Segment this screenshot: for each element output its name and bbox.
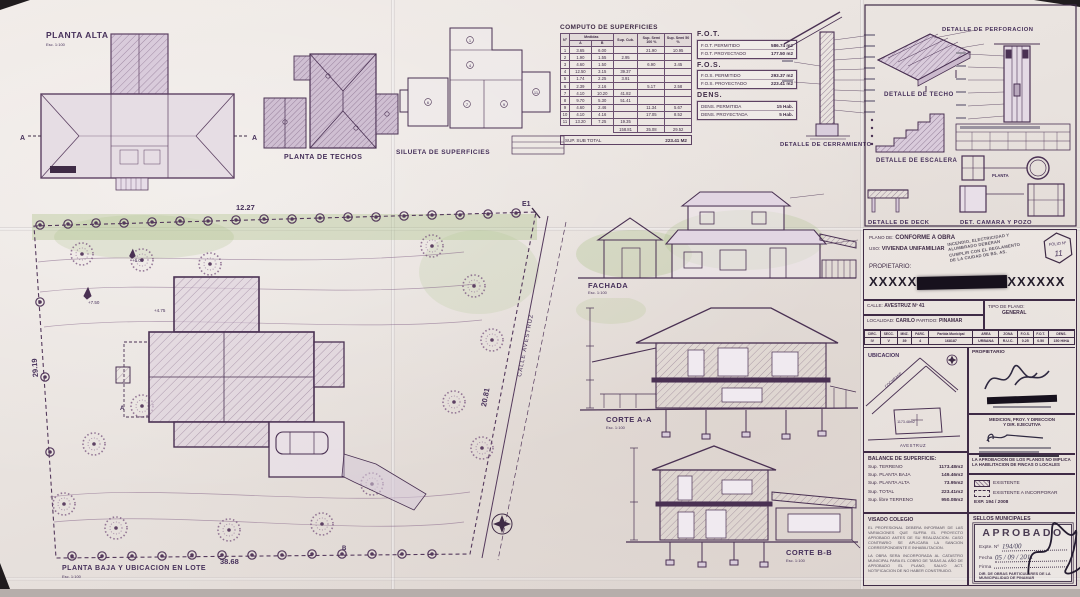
- redacted-x-left: XXXXX: [869, 274, 917, 289]
- sellos-title: SELLOS MUNICIPALES: [969, 514, 1075, 524]
- signature-caption-bar: [993, 406, 1051, 408]
- computo-cell: [665, 118, 692, 125]
- visado-paragraph-1: EL PROFESIONAL DEBERA INFORMAR DE LAS VA…: [868, 525, 963, 550]
- computo-cell: 2.46: [591, 104, 613, 111]
- parcel-header: F.O.T.: [1033, 331, 1048, 338]
- computo-cell: [665, 68, 692, 75]
- computo-row: 5 1.74 2.25 3.91: [561, 75, 692, 82]
- uso-line: USO: VIVIENDA UNIFAMILIAR: [869, 246, 945, 252]
- computo-table: Nº Medidas Sup. Cub. Sup. Semi 100 % Sup…: [560, 33, 692, 133]
- computo-cell: [638, 75, 665, 82]
- computo-cell: 8.52: [665, 111, 692, 118]
- silueta-title: SILUETA DE SUPERFICIES: [396, 149, 490, 156]
- planta-alta-roof-graphics: [28, 34, 249, 190]
- dim-bottom: 38.68: [220, 557, 239, 566]
- computo-cell: 5: [561, 75, 570, 82]
- fachada-title: FACHADA: [588, 281, 628, 290]
- detalle-techo-title: DETALLE DE TECHO: [884, 91, 954, 98]
- tipo-plano-label: TIPO DE PLANO:: [988, 304, 1025, 309]
- contour-label-3: +4.75: [154, 308, 166, 313]
- computo-superficies: COMPUTO DE SUPERFICIES Nº Medidas Sup. C…: [560, 24, 692, 145]
- legend-swatch-existente: [974, 480, 990, 487]
- computo-cell: [665, 97, 692, 104]
- balance-row: Sup. PLANTA ALTA73.95m2: [868, 480, 963, 488]
- parcel-value: 39: [897, 338, 911, 345]
- computo-cell: [665, 75, 692, 82]
- corte-aa-scale: Esc. 1:100: [606, 425, 626, 430]
- computo-total-semi100: 35.08: [638, 126, 665, 133]
- computo-cell: [613, 104, 638, 111]
- computo-cell: 41.82: [613, 90, 638, 97]
- parcel-header: F.O.S.: [1017, 331, 1033, 338]
- parcel-header: SECC.: [880, 331, 897, 338]
- legend-cell: EXISTENTE EXISTENTE A INCORPORAR EXP. 19…: [968, 474, 1075, 513]
- firma-label: Firma: [979, 565, 991, 570]
- uso-value: VIVIENDA UNIFAMILIAR: [882, 246, 945, 252]
- computo-cell: 4: [561, 68, 570, 75]
- parcel-header: MNZ.: [897, 331, 911, 338]
- parcel-table-wrap: CIRC.SECC.MNZ.PARC.Partida MunicipalAREA…: [864, 330, 1075, 345]
- computo-cell: [638, 97, 665, 104]
- computo-cell: 51.41: [613, 97, 638, 104]
- dim-top: 12.27: [236, 203, 255, 212]
- detalle-escalera-title: DETALLE DE ESCALERA: [876, 158, 958, 164]
- computo-cell: 1: [561, 47, 570, 54]
- legend-row-existente: EXISTENTE: [974, 480, 1070, 487]
- plano-label: PLANO DE:: [869, 235, 894, 240]
- computo-cell: 3.15: [591, 68, 613, 75]
- propietario-signature: [969, 357, 1074, 397]
- planta-alta-scale: Esc. 1:100: [46, 42, 66, 47]
- balance-title: BALANCE DE SUPERFICIE:: [868, 456, 963, 462]
- prop-sign-label: PROPIETARIO: [969, 348, 1075, 357]
- computo-cell: 2: [561, 54, 570, 61]
- folio-label: FOLIO Nº: [1049, 240, 1067, 247]
- dim-left: 29.19: [30, 358, 40, 377]
- balance-rows: Sup. TERRENO1173.48m2Sup. PLANTA BAJA149…: [868, 464, 963, 506]
- medicion-signature: [969, 430, 1074, 444]
- computo-subtotal: SUP. SUB TOTAL 223.41 M2: [560, 135, 692, 145]
- computo-row: 11 13.20 7.25 19.35: [561, 118, 692, 125]
- parcel-header: DENS.: [1048, 331, 1074, 338]
- computo-cell: 1.90: [569, 54, 591, 61]
- computo-cell: 39.37: [613, 68, 638, 75]
- plano-value: CONFORME A OBRA: [895, 235, 955, 241]
- computo-cell: 2.95: [613, 54, 638, 61]
- propietario-label: PROPIETARIO:: [869, 264, 911, 270]
- balance-row: Sup. TERRENO1173.48m2: [868, 464, 963, 472]
- redacted-x-right: XXXXXX: [1007, 274, 1065, 289]
- localidad-value: CARILO: [896, 318, 915, 324]
- site-green-wash: [32, 214, 539, 314]
- computo-cell: 4.10: [569, 111, 591, 118]
- sellos-cell: SELLOS MUNICIPALES APROBADO Expte. Nº 19…: [968, 513, 1075, 585]
- title-block: PLANO DE: CONFORME A OBRA USO: VIVIENDA …: [863, 229, 1077, 586]
- computo-cell: [665, 90, 692, 97]
- visado-title: VISADO COLEGIO: [868, 517, 963, 523]
- street-label: CALLE AVESTRUZ: [517, 313, 535, 377]
- expte-value: 194/00: [1002, 541, 1067, 551]
- computo-cell: 9: [561, 104, 570, 111]
- aprobado-stamp: APROBADO Expte. Nº 194/00 Fecha 05 / 09 …: [974, 524, 1072, 582]
- computo-cell: 1.50: [591, 61, 613, 68]
- planta-baja-title: PLANTA BAJA Y UBICACION EN LOTE: [62, 565, 206, 572]
- computo-cell: 8: [561, 97, 570, 104]
- detalle-techo-graphics: [878, 30, 984, 92]
- site-plan-drawing: +6.00 +7.50 +4.75 12.27 29.19 20.81 38.6…: [24, 192, 574, 586]
- medicion-label-2: Y DIR. EJECUTIVA: [972, 422, 1072, 427]
- computo-cell: 12.50: [569, 68, 591, 75]
- localidad-cell: LOCALIDAD: CARILO PARTIDO: PINAMAR: [864, 315, 984, 330]
- plano-de-line: PLANO DE: CONFORME A OBRA: [869, 235, 955, 241]
- parcel-header: PARC.: [912, 331, 929, 338]
- computo-cell: [665, 54, 692, 61]
- computo-col-n: Nº: [561, 34, 570, 47]
- ubicacion-map: UBICACION COCHRANE 1173.48m2 AVESTRUZ: [864, 348, 966, 451]
- nota-cell: LA APROBACION DE LOS PLANOS NO IMPLICA L…: [968, 454, 1075, 474]
- parcel-header: Partida Municipal: [929, 331, 973, 338]
- firma-value: [994, 566, 1067, 568]
- firma-row: Firma: [979, 565, 1067, 570]
- balance-row: Sup. TOTAL223.41m2: [868, 489, 963, 497]
- fachada-drawing: FACHADA Esc. 1:100: [574, 182, 860, 296]
- legend-row-incorporar: EXISTENTE A INCORPORAR: [974, 490, 1070, 497]
- planta-alta-title: PLANTA ALTA: [46, 30, 108, 40]
- computo-cell: [613, 111, 638, 118]
- parcel-header: ZONA: [999, 331, 1017, 338]
- ubicacion-map-graphics: [866, 355, 960, 440]
- titleblock-header-box: PLANO DE: CONFORME A OBRA USO: VIVIENDA …: [864, 230, 1075, 300]
- calle-value: AVESTRUZ Nº 41: [884, 303, 924, 309]
- computo-row: 6 2.39 2.16 5.17 2.58: [561, 82, 692, 89]
- computo-total-semi50: 29.52: [665, 126, 692, 133]
- computo-cell: 5.17: [638, 82, 665, 89]
- deck-detail-graphics: [868, 190, 908, 212]
- site-marker-a: A: [120, 406, 125, 412]
- computo-row: 8 9.70 5.30 51.41: [561, 97, 692, 104]
- computo-row: 2 1.90 1.55 2.95: [561, 54, 692, 61]
- computo-cell: 2.39: [569, 82, 591, 89]
- computo-cell: 2.16: [591, 82, 613, 89]
- expte-label: Expte. Nº: [979, 545, 999, 550]
- uso-label: USO:: [869, 246, 880, 251]
- legend-existente-label: EXISTENTE: [993, 481, 1020, 486]
- computo-cell: [613, 82, 638, 89]
- calle-label: CALLE:: [867, 303, 883, 308]
- contour-label-2: +7.50: [88, 300, 100, 305]
- balance-cell: BALANCE DE SUPERFICIE: Sup. TERRENO1173.…: [864, 452, 968, 513]
- computo-cell: 1.55: [591, 54, 613, 61]
- computo-cell: 6.00: [591, 47, 613, 54]
- medicion-cell: MEDICION, PROY. Y DIRECCION Y DIR. EJECU…: [968, 414, 1075, 454]
- computo-col-cub: Sup. Cub.: [613, 34, 638, 47]
- parcel-value: R.U.C.: [999, 338, 1017, 345]
- propietario-redacted-line: XXXXXXXXXXX: [869, 274, 1065, 289]
- computo-cell: 17.05: [638, 111, 665, 118]
- computo-cell: 10.95: [665, 47, 692, 54]
- fachada-scale: Esc. 1:100: [588, 290, 608, 295]
- map-street-2: AVESTRUZ: [900, 443, 926, 448]
- detalle-deck-title: DETALLE DE DECK: [868, 220, 930, 226]
- computo-col-semi100: Sup. Semi 100 %: [638, 34, 665, 47]
- planta-baja-scale: Esc. 1:100: [62, 574, 82, 579]
- signature-redaction-bar: [987, 395, 1057, 404]
- computo-cell: 4.60: [569, 104, 591, 111]
- planta-techos-title: PLANTA DE TECHOS: [284, 154, 362, 161]
- detalle-cerramiento-title: DETALLE DE CERRAMIENTO: [780, 142, 872, 148]
- parcel-value: 168187: [929, 338, 973, 345]
- computo-totals-row: 158.81 35.08 29.52: [561, 126, 692, 133]
- planta-alta-section-marker-left: A: [20, 135, 25, 142]
- aprobado-word: APROBADO: [979, 527, 1067, 539]
- corte-bb-scale: Esc. 1:100: [786, 558, 806, 563]
- ubicacion-cell: UBICACION COCHRANE 1173.48m2 AVESTRUZ: [864, 347, 968, 452]
- legend-incorporar-label: EXISTENTE A INCORPORAR: [993, 491, 1058, 496]
- computo-subtotal-value: 223.41 M2: [665, 138, 687, 143]
- computo-subtotal-label: SUP. SUB TOTAL: [565, 138, 601, 143]
- propietario-firma-cell: PROPIETARIO: [968, 347, 1075, 414]
- planta-alta-drawing: PLANTA ALTA Esc. 1:100 A A: [16, 6, 264, 202]
- map-area-value: 1173.48m2: [897, 420, 915, 424]
- direccion-obras-line: DIR. DE OBRAS PARTICULARES DE LA MUNICIP…: [979, 572, 1067, 581]
- parcel-value: URBANA: [973, 338, 999, 345]
- map-street-1: COCHRANE: [884, 371, 903, 389]
- computo-title: COMPUTO DE SUPERFICIES: [560, 24, 692, 31]
- folio-badge: FOLIO Nº 11: [1040, 230, 1075, 265]
- balance-row: Sup. libre TERRENO950.08m2: [868, 497, 963, 505]
- detalle-perforacion-title: DETALLE DE PERFORACION: [942, 27, 1033, 33]
- redaction-bar: [917, 275, 1007, 290]
- planta-small-label: PLANTA: [992, 173, 1009, 178]
- parcel-value: 0.25: [1017, 338, 1033, 345]
- computo-row: 1 3.65 6.00 21.90 10.95: [561, 47, 692, 54]
- parcel-value: 0.50: [1033, 338, 1048, 345]
- computo-cell: [638, 68, 665, 75]
- computo-cell: 10.20: [591, 90, 613, 97]
- computo-cell: 4.10: [569, 90, 591, 97]
- computo-cell: 3: [561, 61, 570, 68]
- computo-col-semi50: Sup. Semi 50 %: [665, 34, 692, 47]
- parcel-value: V: [880, 338, 897, 345]
- partido-value: PINAMAR: [939, 318, 962, 324]
- computo-row: 10 4.10 4.16 17.05 8.52: [561, 111, 692, 118]
- computo-cell: [613, 61, 638, 68]
- marker-e1: E1: [522, 201, 531, 208]
- reglamento-stamp: INCENDIO, ELECTRICIDAD Y ALUMBRADO DEBER…: [947, 226, 1051, 263]
- corte-bb-title: CORTE B-B: [786, 548, 832, 557]
- parcel-value: IV: [865, 338, 881, 345]
- computo-cell: 9.70: [569, 97, 591, 104]
- details-panel: DETALLE DE TECHO DETALLE DE PERFORACION …: [864, 4, 1078, 228]
- computo-cell: 7: [561, 90, 570, 97]
- partido-label: PARTIDO:: [916, 318, 937, 323]
- computo-cell: 2.25: [591, 75, 613, 82]
- planta-techos-graphics: [264, 54, 398, 148]
- computo-cell: [613, 47, 638, 54]
- computo-cell: [638, 54, 665, 61]
- dim-right: 20.81: [479, 387, 491, 407]
- fecha-row: Fecha 05 / 09 / 2011: [979, 553, 1067, 562]
- detalle-escalera-graphics: [871, 114, 944, 152]
- corte-aa-green: [576, 298, 646, 324]
- silueta-drawing: 1 4 6 7 9 11 SILUETA DE SUPERFICIES: [392, 20, 570, 160]
- detalle-cerramiento-drawing: DETALLE DE CERRAMIENTO: [776, 4, 878, 148]
- site-marker-b: B: [342, 546, 347, 552]
- computo-cell: 2.58: [665, 82, 692, 89]
- computo-row: 7 4.10 10.20 41.82: [561, 90, 692, 97]
- computo-cell: 21.90: [638, 47, 665, 54]
- folio-value: 11: [1054, 249, 1063, 259]
- parcel-header: AREA: [973, 331, 999, 338]
- balance-row: Sup. PLANTA BAJA149.46m2: [868, 472, 963, 480]
- camara-table-graphics: [956, 124, 1070, 150]
- parcel-table: CIRC.SECC.MNZ.PARC.Partida MunicipalAREA…: [864, 330, 1075, 345]
- computo-cell: 11.34: [638, 104, 665, 111]
- fecha-label: Fecha: [979, 556, 992, 561]
- computo-row: 9 4.60 2.46 11.34 5.67: [561, 104, 692, 111]
- computo-cell: [638, 90, 665, 97]
- corte-aa-drawing: CORTE A-A Esc. 1:100: [576, 298, 862, 448]
- computo-cell: 1.74: [569, 75, 591, 82]
- north-compass: [492, 514, 512, 534]
- nota-text: LA APROBACION DE LOS PLANOS NO IMPLICA L…: [969, 455, 1075, 469]
- computo-row: 3 4.60 1.50 6.90 3.45: [561, 61, 692, 68]
- det-camara-pozo-title: DET. CAMARA Y POZO: [960, 220, 1032, 226]
- camara-pozo-corte-graphics: [960, 184, 1064, 216]
- computo-cell: 10: [561, 111, 570, 118]
- computo-cell: 5.67: [665, 104, 692, 111]
- parcel-value: 4: [912, 338, 929, 345]
- visado-paragraph-2: LA OBRA SERA INCORPORADA AL CATASTRO MUN…: [868, 553, 963, 573]
- computo-cell: 6: [561, 82, 570, 89]
- computo-cell: 4.16: [591, 111, 613, 118]
- computo-cell: 7.25: [591, 118, 613, 125]
- computo-cell: 3.91: [613, 75, 638, 82]
- localidad-label: LOCALIDAD:: [867, 318, 894, 323]
- tipo-plano-value: GENERAL: [1002, 310, 1026, 316]
- computo-cell: 13.20: [569, 118, 591, 125]
- computo-cell: 11: [561, 118, 570, 125]
- computo-cell: 3.45: [665, 61, 692, 68]
- parcel-header: CIRC.: [865, 331, 881, 338]
- computo-cell: 19.35: [613, 118, 638, 125]
- planta-techos-drawing: PLANTA DE TECHOS: [258, 36, 400, 162]
- expte-row: Expte. Nº 194/00: [979, 542, 1067, 551]
- exp-number: EXP. 194 / 2008: [974, 500, 1070, 505]
- computo-total-cub: 158.81: [613, 126, 638, 133]
- corte-bb-drawing: CORTE B-B Esc. 1:100: [622, 440, 862, 578]
- computo-cell: 6.90: [638, 61, 665, 68]
- computo-cell: 3.65: [569, 47, 591, 54]
- visado-cell: VISADO COLEGIO EL PROFESIONAL DEBERA INF…: [864, 513, 968, 585]
- planta-alta-section-marker-right: A: [252, 135, 257, 142]
- fecha-value: 05 / 09 / 2011: [995, 552, 1067, 562]
- computo-cell: [638, 118, 665, 125]
- computo-cell: 4.60: [569, 61, 591, 68]
- tipo-plano-cell: TIPO DE PLANO: GENERAL: [984, 300, 1075, 330]
- ubicacion-label: UBICACION: [868, 353, 899, 359]
- cerramiento-graphics: [782, 12, 875, 139]
- computo-row: 4 12.50 3.15 39.37: [561, 68, 692, 75]
- legend-swatch-incorporar: [974, 490, 990, 497]
- calle-cell: CALLE: AVESTRUZ Nº 41: [864, 300, 984, 315]
- computo-cell: 5.30: [591, 97, 613, 104]
- contour-label-1: +6.00: [132, 258, 144, 263]
- parcel-value: 150 H/HA: [1048, 338, 1074, 345]
- corte-aa-title: CORTE A-A: [606, 415, 652, 424]
